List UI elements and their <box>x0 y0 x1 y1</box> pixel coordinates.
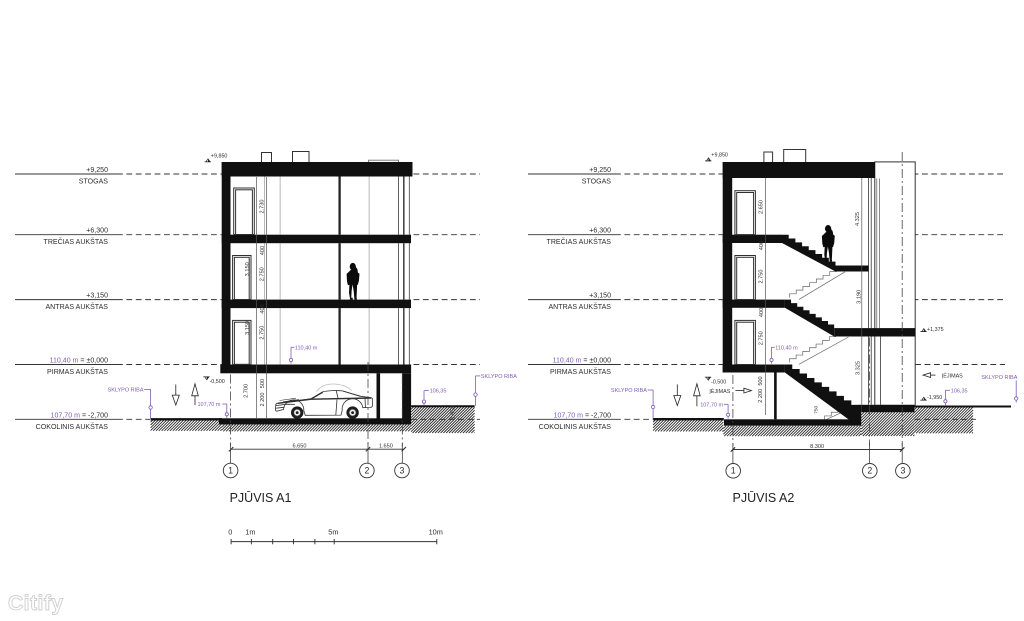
svg-text:PJŪVIS A2: PJŪVIS A2 <box>733 491 795 505</box>
svg-text:1m: 1m <box>245 528 255 537</box>
svg-text:750: 750 <box>813 405 819 413</box>
svg-text:+9,250: +9,250 <box>589 167 611 174</box>
svg-text:400: 400 <box>759 241 765 250</box>
svg-text:+6,300: +6,300 <box>589 228 611 235</box>
svg-text:2.730: 2.730 <box>259 200 265 214</box>
svg-text:+9,850: +9,850 <box>211 154 228 160</box>
svg-text:3: 3 <box>900 466 905 476</box>
svg-text:ANTRAS AUKŠTAS: ANTRAS AUKŠTAS <box>45 302 108 311</box>
svg-text:10m: 10m <box>429 528 443 537</box>
svg-text:107,70 m = -2,700: 107,70 m = -2,700 <box>51 412 108 419</box>
svg-text:6.650: 6.650 <box>293 444 307 450</box>
svg-text:+3,150: +3,150 <box>86 293 108 300</box>
svg-text:1: 1 <box>228 466 233 476</box>
svg-text:107,70 m: 107,70 m <box>198 402 221 408</box>
svg-text:2.750: 2.750 <box>759 270 765 284</box>
svg-text:110,40 m = ±0,000: 110,40 m = ±0,000 <box>553 358 611 365</box>
svg-text:TREČIAS AUKŠTAS: TREČIAS AUKŠTAS <box>547 237 612 246</box>
svg-text:1: 1 <box>731 466 736 476</box>
svg-text:106,35: 106,35 <box>430 389 447 395</box>
svg-text:-0,500: -0,500 <box>711 380 726 386</box>
svg-text:ANTRAS AUKŠTAS: ANTRAS AUKŠTAS <box>548 302 611 311</box>
svg-text:3.150: 3.150 <box>245 262 251 276</box>
svg-text:+6,300: +6,300 <box>86 228 108 235</box>
svg-text:TREČIAS AUKŠTAS: TREČIAS AUKŠTAS <box>44 237 109 246</box>
svg-text:ĮĖJIMAS: ĮĖJIMAS <box>942 373 963 380</box>
svg-text:2.750: 2.750 <box>259 326 265 340</box>
svg-text:107,70 m: 107,70 m <box>700 402 723 408</box>
svg-text:2.750: 2.750 <box>259 267 265 281</box>
svg-text:2.750: 2.750 <box>759 331 765 345</box>
svg-text:SKLYPO RIBA: SKLYPO RIBA <box>108 388 144 394</box>
svg-text:2.650: 2.650 <box>759 200 765 214</box>
svg-text:110,40 m: 110,40 m <box>775 345 798 351</box>
svg-text:106,35: 106,35 <box>951 388 968 394</box>
svg-text:3.190: 3.190 <box>857 290 863 304</box>
svg-text:8.300: 8.300 <box>810 444 824 450</box>
svg-text:+3,150: +3,150 <box>589 293 611 300</box>
svg-text:400: 400 <box>260 246 266 255</box>
svg-text:110,40 m: 110,40 m <box>295 345 318 351</box>
svg-text:110,40 m = ±0,000: 110,40 m = ±0,000 <box>50 358 108 365</box>
svg-text:PJŪVIS A1: PJŪVIS A1 <box>230 491 292 505</box>
svg-text:+9,250: +9,250 <box>86 167 108 174</box>
svg-text:COKOLINIS AUKŠTAS: COKOLINIS AUKŠTAS <box>539 422 612 431</box>
svg-text:3.325: 3.325 <box>856 361 862 375</box>
svg-text:STOGAS: STOGAS <box>79 179 109 186</box>
svg-text:107,70 m = -2,700: 107,70 m = -2,700 <box>554 412 611 419</box>
svg-text:ĮĖJIMAS: ĮĖJIMAS <box>709 388 730 395</box>
svg-text:0: 0 <box>228 528 232 537</box>
svg-text:400: 400 <box>260 304 266 313</box>
svg-text:3: 3 <box>400 465 405 475</box>
svg-text:2.700: 2.700 <box>244 384 250 398</box>
svg-text:500: 500 <box>758 376 764 385</box>
svg-text:STOGAS: STOGAS <box>582 179 612 186</box>
svg-text:2: 2 <box>867 466 872 476</box>
svg-text:SKLYPO RIBA: SKLYPO RIBA <box>611 388 647 394</box>
svg-text:Citify: Citify <box>8 592 64 615</box>
svg-text:SKLYPO RIBA: SKLYPO RIBA <box>481 374 517 380</box>
svg-text:SKLYPO RIBA: SKLYPO RIBA <box>981 375 1017 381</box>
svg-text:1.650: 1.650 <box>379 444 393 450</box>
svg-text:3.150: 3.150 <box>245 321 251 335</box>
svg-text:COKOLINIS AUKŠTAS: COKOLINIS AUKŠTAS <box>36 422 109 431</box>
svg-text:1.950: 1.950 <box>451 406 457 420</box>
svg-text:2 200: 2 200 <box>758 389 764 403</box>
svg-text:PIRMAS AUKŠTAS: PIRMAS AUKŠTAS <box>47 367 108 376</box>
svg-text:2 200: 2 200 <box>260 393 266 407</box>
svg-text:+9,850: +9,850 <box>711 153 728 159</box>
svg-text:5m: 5m <box>328 528 338 537</box>
svg-text:4.325: 4.325 <box>855 212 861 226</box>
svg-text:400: 400 <box>759 308 765 317</box>
svg-text:-0,500: -0,500 <box>210 379 225 385</box>
svg-text:-1,950: -1,950 <box>927 395 942 401</box>
svg-text:2: 2 <box>364 465 369 475</box>
svg-text:500: 500 <box>260 379 266 388</box>
svg-text:+1,375: +1,375 <box>927 327 944 333</box>
svg-text:PIRMAS AUKŠTAS: PIRMAS AUKŠTAS <box>550 367 611 376</box>
